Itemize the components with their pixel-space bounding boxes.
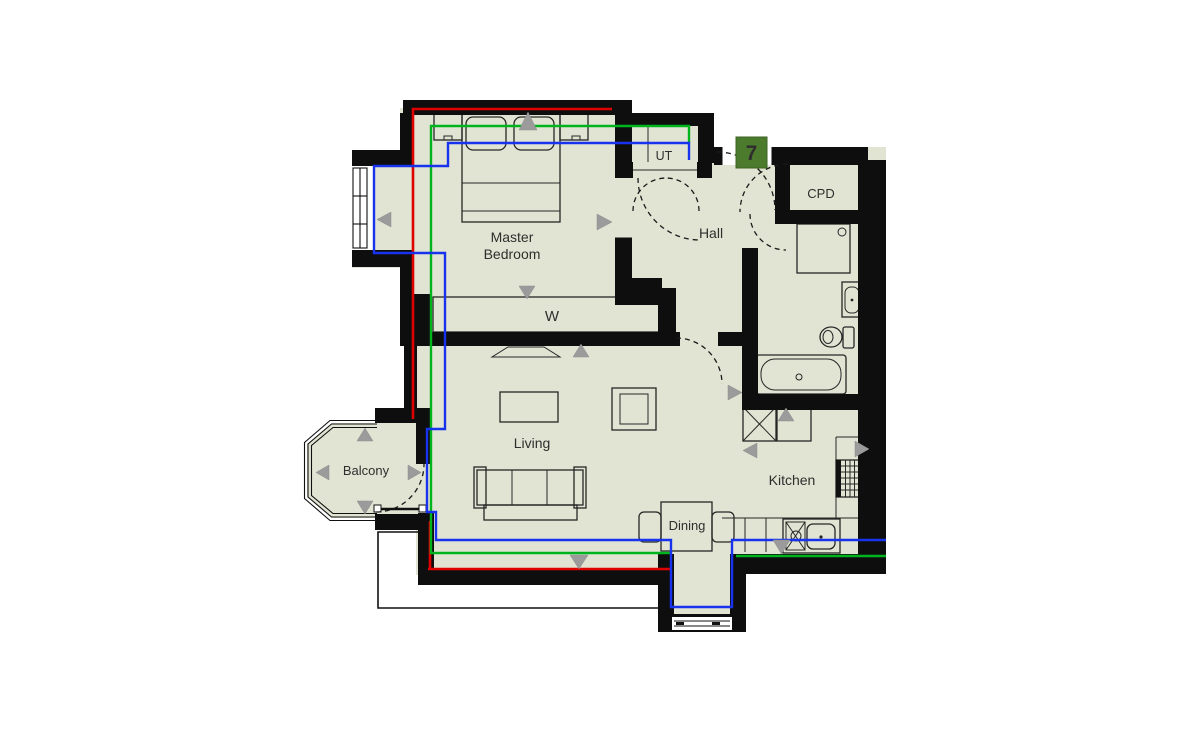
wardrobe-label: W [545, 308, 560, 325]
dining-bay-window [672, 617, 732, 630]
floorplan-page: Master Bedroom W UT Hall CPD Living Balc… [0, 0, 1200, 733]
room-label-master-bedroom: Master [491, 229, 534, 245]
unit-badge-number: 7 [746, 142, 758, 165]
bedroom-window [350, 166, 374, 250]
room-label-kitchen: Kitchen [769, 472, 816, 488]
floorplan-svg: Master Bedroom W UT Hall CPD Living Balc… [0, 0, 1200, 733]
unit-number-badge: 7 [736, 137, 767, 168]
room-label-master-bedroom: Bedroom [484, 246, 541, 262]
room-label-living: Living [514, 435, 551, 451]
room-label-cupboard: CPD [807, 186, 834, 201]
room-label-balcony: Balcony [343, 463, 390, 478]
room-label-utility: UT [656, 149, 673, 163]
room-label-dining: Dining [669, 518, 706, 533]
room-label-hall: Hall [699, 225, 723, 241]
floor-area [307, 108, 886, 620]
